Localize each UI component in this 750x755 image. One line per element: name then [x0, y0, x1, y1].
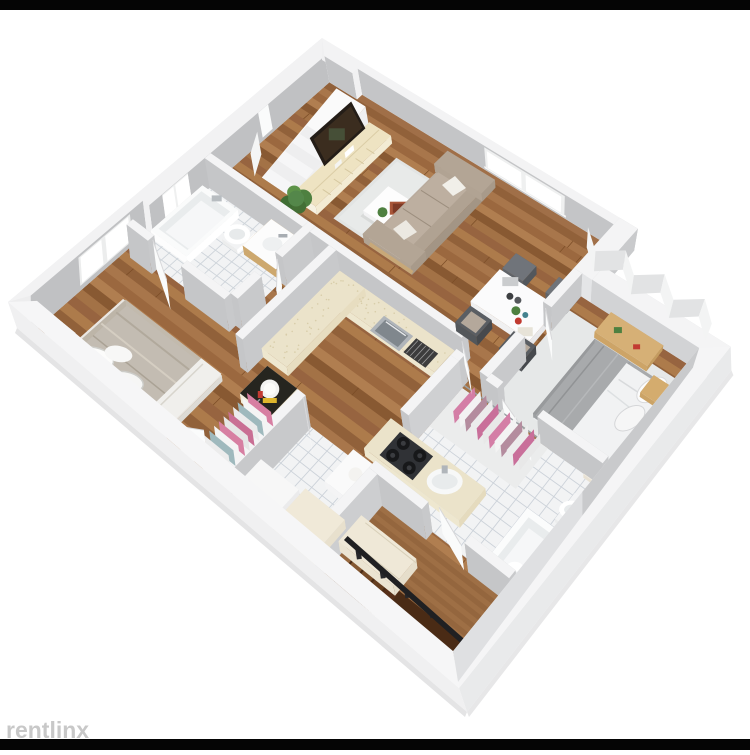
- svg-text:rentlinx: rentlinx: [6, 717, 89, 743]
